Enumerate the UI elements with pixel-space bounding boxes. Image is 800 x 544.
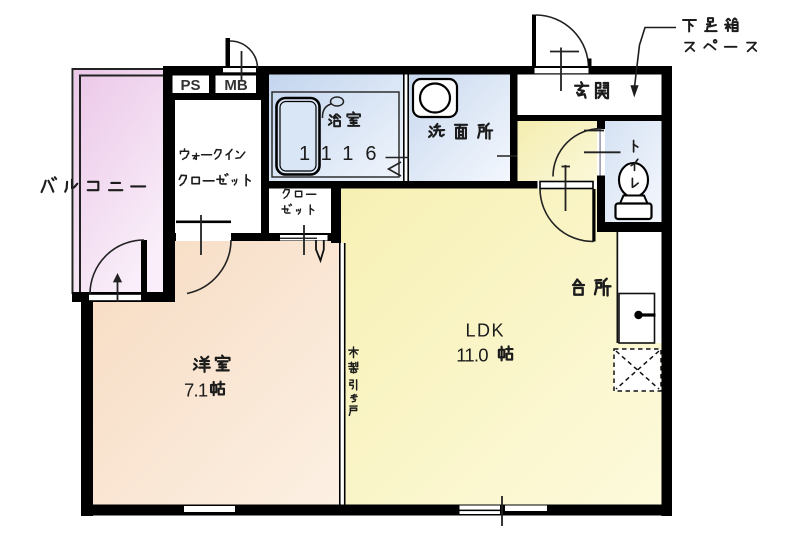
svg-text:1116: 1116	[299, 143, 389, 165]
svg-text:LDK: LDK	[466, 321, 506, 341]
svg-text:MB: MB	[224, 77, 247, 94]
svg-text:11.0: 11.0	[456, 345, 488, 366]
svg-text:7.1: 7.1	[184, 380, 208, 401]
svg-text:PS: PS	[180, 77, 200, 94]
